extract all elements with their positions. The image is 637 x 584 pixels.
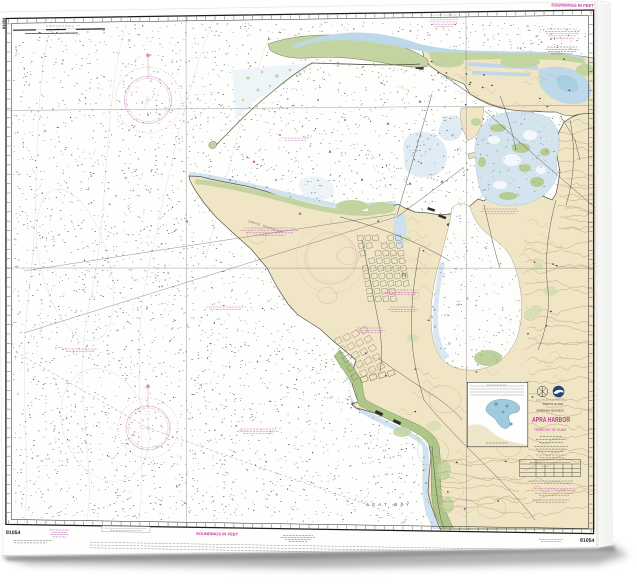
svg-text:81054: 81054	[6, 530, 21, 536]
svg-text:MARIANA ISLANDS: MARIANA ISLANDS	[536, 409, 563, 413]
svg-text:A G A T B A Y: A G A T B A Y	[366, 502, 410, 507]
svg-text:SOUNDINGS IN FEET: SOUNDINGS IN FEET	[551, 2, 594, 8]
svg-text:V: V	[448, 341, 451, 346]
svg-text:TERRITORY OF GUAM: TERRITORY OF GUAM	[534, 428, 566, 432]
svg-text:A: A	[466, 296, 469, 301]
svg-text:PORTS GUAM: PORTS GUAM	[543, 402, 564, 406]
svg-text:SOUNDINGS IN FEET: SOUNDINGS IN FEET	[196, 531, 239, 537]
svg-text:81054: 81054	[580, 538, 595, 544]
svg-text:APRA HARBOR: APRA HARBOR	[532, 417, 570, 424]
svg-text:N: N	[402, 272, 407, 279]
svg-text:81054: 81054	[1, 17, 6, 29]
